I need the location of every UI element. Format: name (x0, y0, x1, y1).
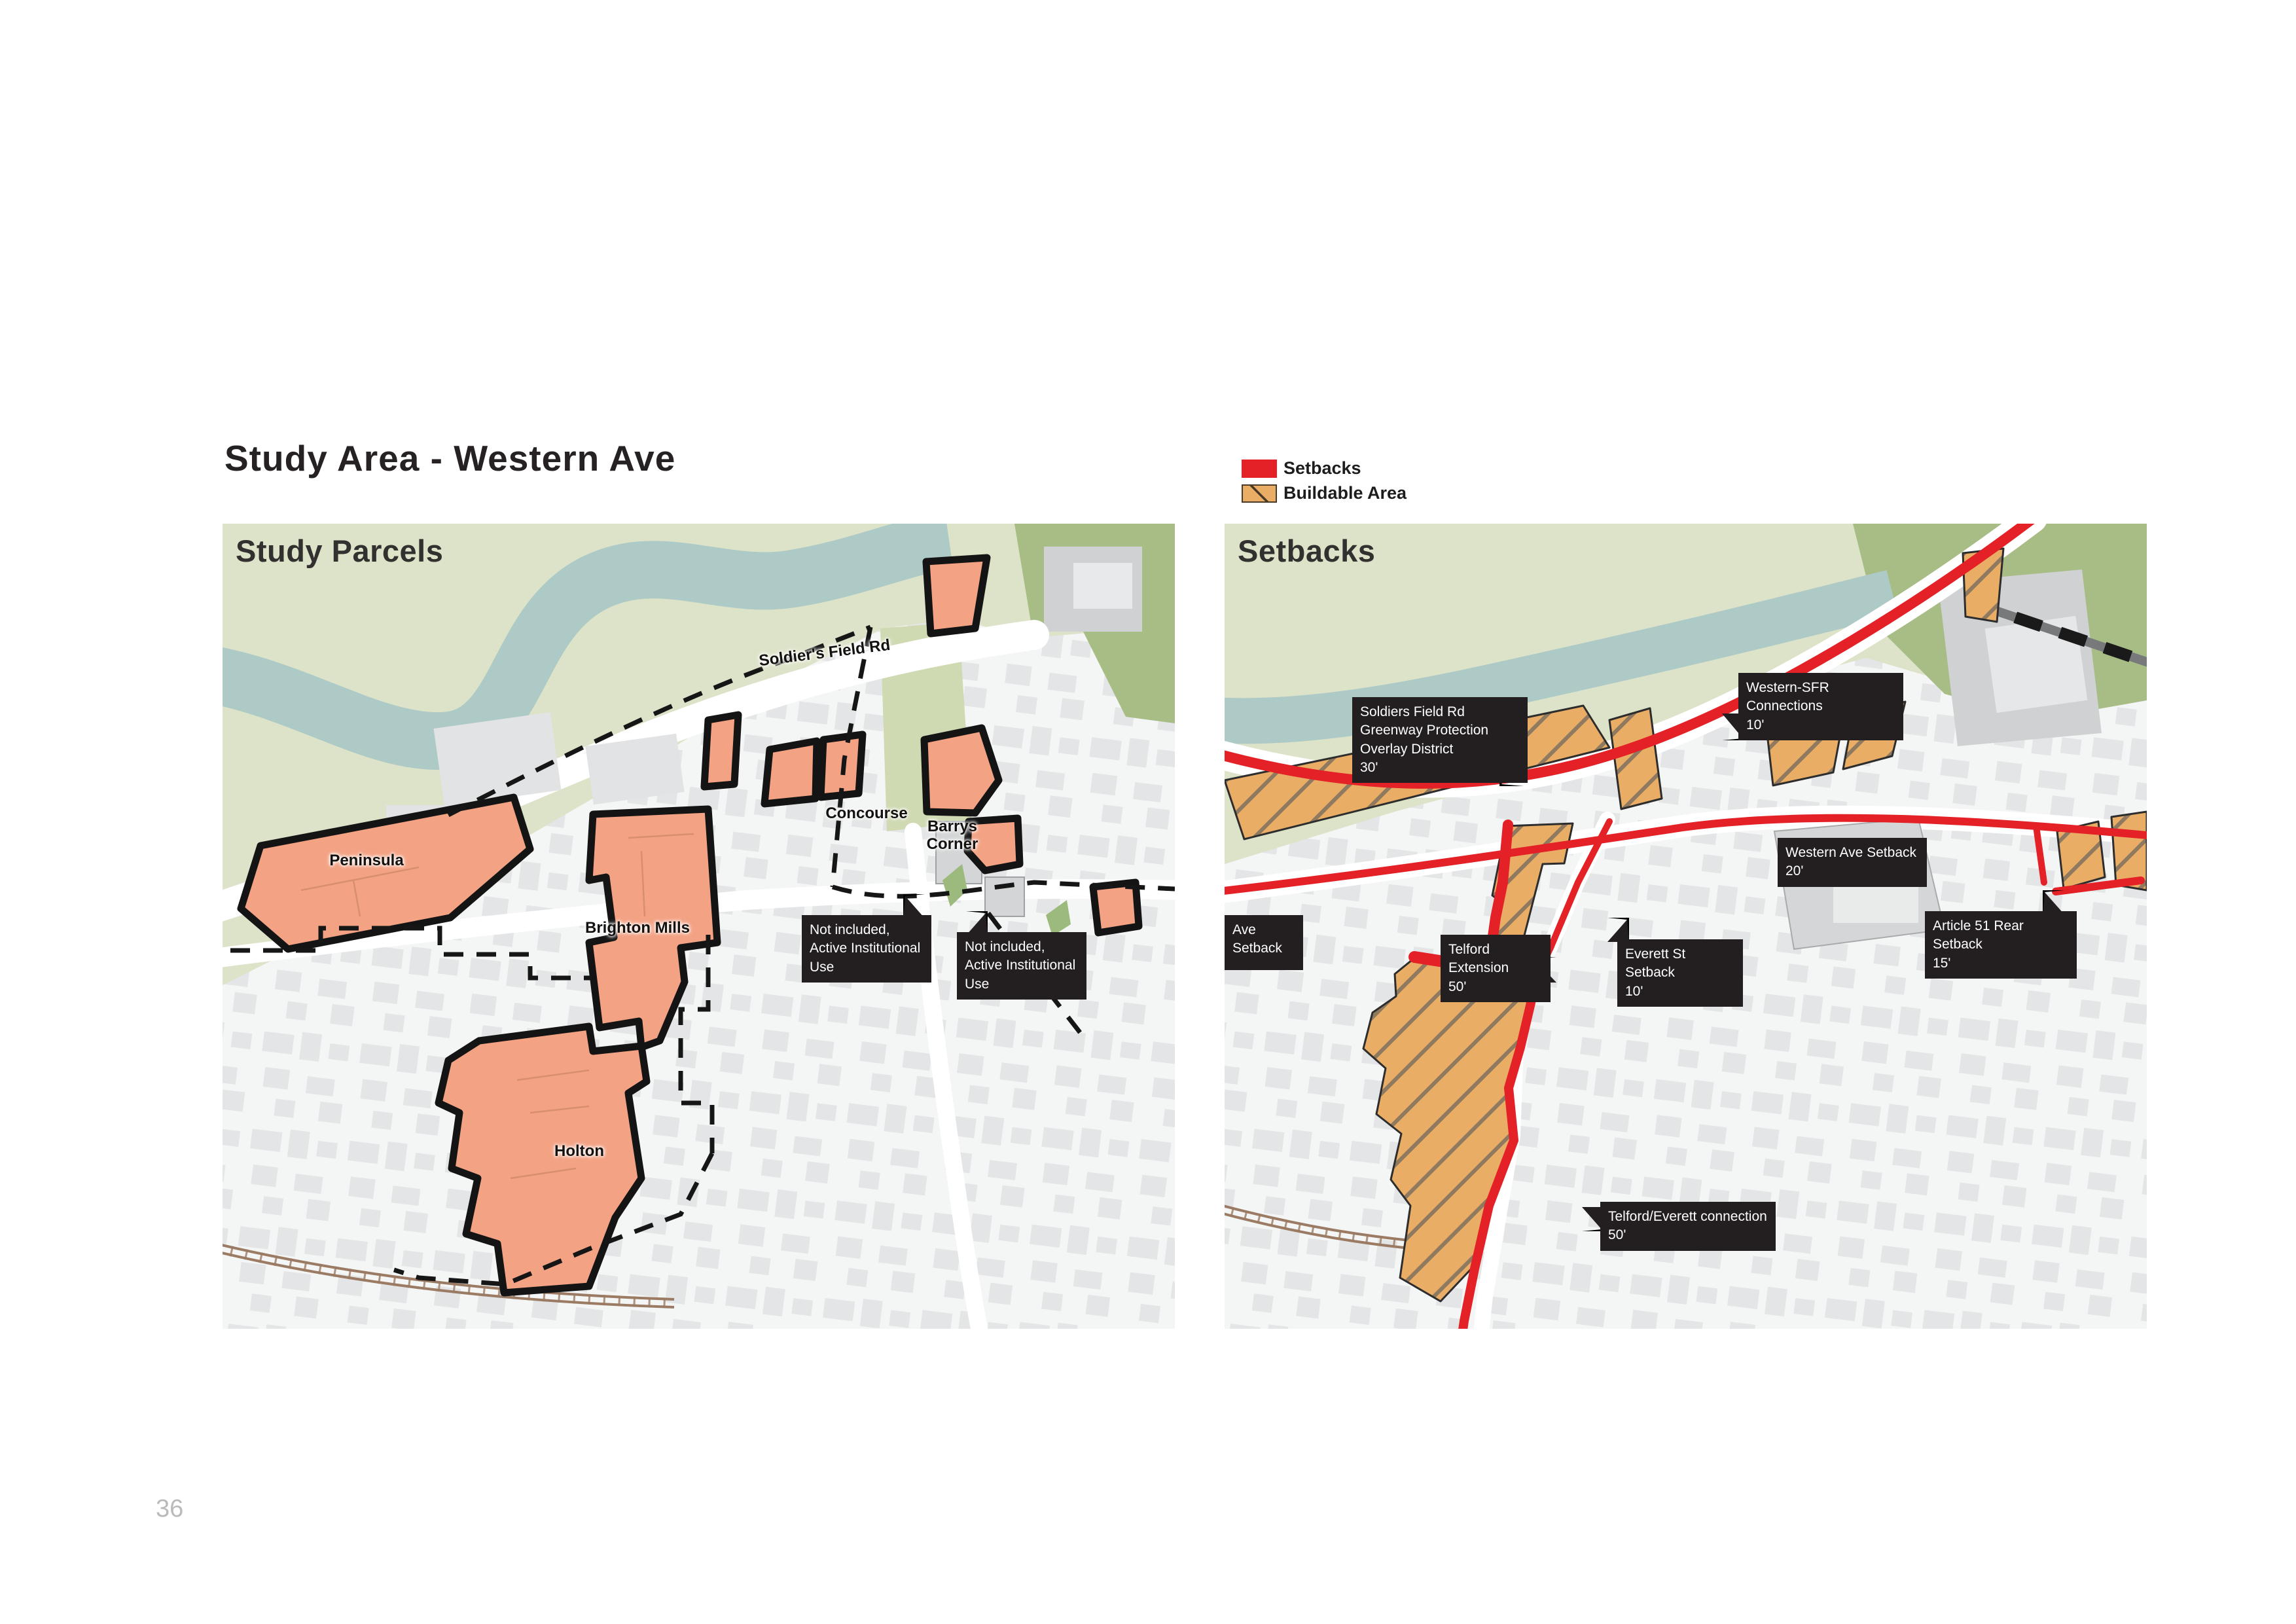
study-parcels-heading: Study Parcels (236, 533, 443, 569)
annotation-western-sfr-value: 10' (1746, 717, 1764, 732)
annotation-greenway: Soldiers Field Rd Greenway Protection Ov… (1352, 697, 1528, 783)
setbacks-swatch-icon (1242, 460, 1277, 478)
parcel-label-holton: Holton (533, 1143, 625, 1161)
street-label-barrys-corner: Barrys Corner (903, 818, 1001, 854)
parcel-label-brighton-mills: Brighton Mills (585, 920, 690, 937)
legend-buildable-label: Buildable Area (1283, 483, 1407, 503)
page-title: Study Area - Western Ave (224, 437, 675, 479)
annotation-telford-ext-value: 50' (1448, 979, 1466, 994)
note-not-included-1: Not included, Active Institutional Use (802, 915, 931, 983)
setbacks-map: Setbacks Soldiers Field Rd Greenway Prot… (1225, 524, 2147, 1329)
annotation-western-ave-label: Western Ave Setback (1785, 845, 1916, 860)
annotation-everett-label: Everett St Setback (1625, 947, 1685, 980)
study-parcels-map: Study Parcels Soldier's Field Rd Concour… (223, 524, 1175, 1329)
annotation-greenway-value: 30' (1360, 760, 1378, 775)
annotation-ave-setback: Ave Setback (1225, 915, 1303, 970)
note-not-included-2: Not included, Active Institutional Use (957, 932, 1086, 1000)
parcel-label-peninsula: Peninsula (314, 852, 419, 870)
annotation-telford-everett-value: 50' (1608, 1227, 1626, 1242)
annotation-article51: Article 51 Rear Setback 15' (1925, 911, 2077, 979)
legend-item-setbacks: Setbacks (1242, 458, 1407, 478)
annotation-ave-setback-label: Ave Setback (1232, 922, 1282, 956)
legend-setbacks-label: Setbacks (1283, 458, 1361, 478)
annotation-western-sfr: Western-SFR Connections 10' (1738, 673, 1903, 740)
annotation-article51-label: Article 51 Rear Setback (1933, 918, 2024, 952)
annotation-western-ave: Western Ave Setback 20' (1778, 838, 1927, 887)
annotation-everett-value: 10' (1625, 984, 1643, 999)
page-number: 36 (156, 1495, 183, 1523)
annotation-everett-pointer (1607, 918, 1629, 942)
annotation-telford-ext: Telford Extension 50' (1441, 935, 1551, 1002)
annotation-telford-ext-label: Telford Extension (1448, 942, 1509, 975)
annotation-article51-value: 15' (1933, 956, 1950, 971)
annotation-telford-everett: Telford/Everett connection 50' (1600, 1202, 1776, 1251)
annotation-greenway-label: Soldiers Field Rd Greenway Protection Ov… (1360, 704, 1488, 757)
annotation-everett: Everett St Setback 10' (1617, 939, 1743, 1007)
legend-item-buildable: Buildable Area (1242, 483, 1407, 503)
annotation-telford-everett-label: Telford/Everett connection (1608, 1209, 1767, 1224)
parking-lot (1938, 569, 2102, 746)
annotation-western-ave-value: 20' (1785, 863, 1803, 878)
study-parcels-basemap (223, 524, 1175, 1329)
annotation-western-sfr-label: Western-SFR Connections (1746, 680, 1829, 713)
parking-lot (1044, 547, 1142, 632)
buildable-swatch-icon (1242, 484, 1277, 503)
map-legend: Setbacks Buildable Area (1242, 458, 1407, 508)
setbacks-heading: Setbacks (1238, 533, 1375, 569)
